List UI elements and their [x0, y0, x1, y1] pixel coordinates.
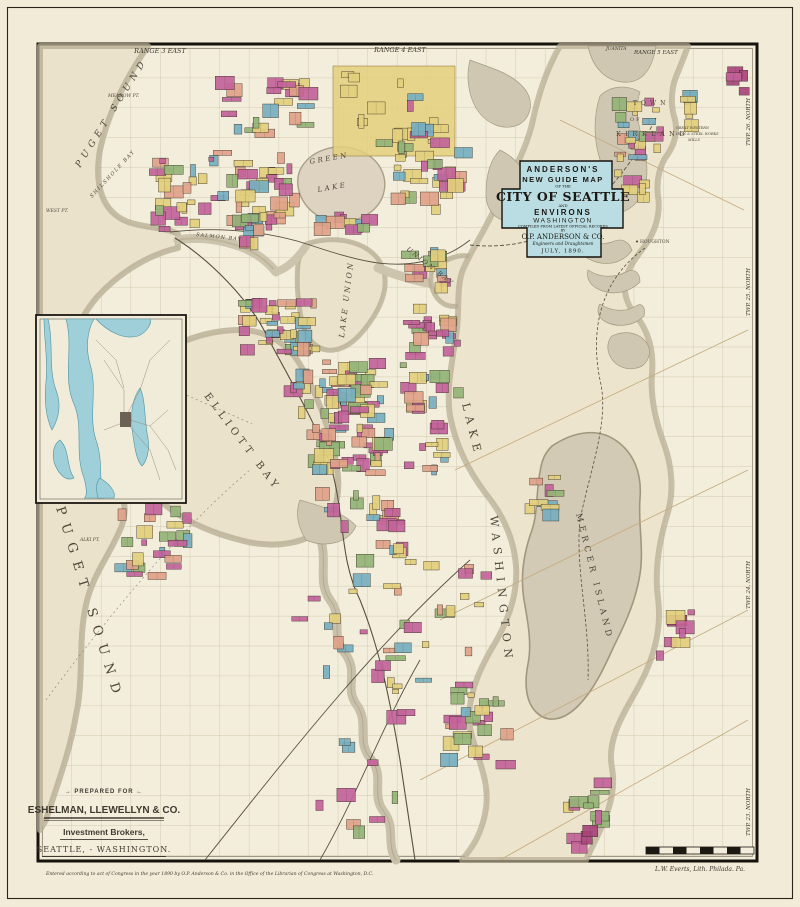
cartouche-washington: WASHINGTON — [533, 218, 592, 225]
label-kirkland-of: OF — [630, 117, 642, 123]
label-twp26: TWP. 26. NORTH — [746, 98, 752, 146]
cartouche-engineers: Engineers and Draughtsmen — [531, 241, 593, 246]
cartouche-july-1890: JULY, 1890. — [540, 249, 584, 255]
cartouche-environs: ENVIRONS — [534, 208, 592, 217]
label-west-pt: WEST PT. — [46, 208, 69, 214]
label-mills-1: GREAT WESTERN — [676, 126, 710, 130]
cartouche-of-the: OF THE — [555, 184, 571, 189]
label-houghton: HOUGHTON — [640, 239, 670, 245]
label-mills-2: IRON & STEEL WORKS — [675, 132, 719, 136]
prepared-eyebrow: → PREPARED FOR ← — [65, 789, 144, 795]
cartouche-andersons: ANDERSON'S — [526, 165, 599, 174]
label-twp24: TWP. 24. NORTH — [746, 561, 752, 609]
map-canvas: PUGET SOUND SHILSHOLE BAY MEADOW PT. WES… — [0, 0, 800, 907]
inset-map — [36, 315, 186, 503]
label-range5: RANGE 5 EAST — [633, 50, 678, 56]
label-meadow-pt: MEADOW PT. — [107, 93, 140, 99]
label-range3: RANGE 3 EAST — [133, 47, 186, 55]
label-twp23: TWP. 23. NORTH — [746, 788, 752, 836]
prepared-firm: ESHELMAN, LLEWELLYN & CO. — [28, 805, 181, 816]
label-twp25: TWP. 25. NORTH — [746, 268, 752, 316]
label-mills-3: MILLS — [687, 138, 701, 142]
label-range4: RANGE 4 EAST — [373, 46, 426, 54]
prepared-brokers: Investment Brokers, — [63, 827, 145, 837]
cartouche-op-anderson: O.P. ANDERSON & CO. — [522, 233, 605, 241]
label-alki-pt: ALKI PT. — [79, 537, 100, 543]
label-kirkland-town: TOWN — [633, 100, 669, 107]
copyright-line: Entered according to act of Congress in … — [45, 871, 374, 877]
label-juanita: JUANITA — [605, 46, 627, 52]
scale-bar — [646, 847, 754, 854]
map-sheet: PUGET SOUND SHILSHOLE BAY MEADOW PT. WES… — [0, 0, 800, 907]
prepared-city: SEATTLE, - WASHINGTON. — [37, 845, 172, 854]
houghton-dot — [636, 241, 638, 243]
lithographer-imprint: L.W. Everts, Lith. Philada. Pa. — [654, 866, 745, 873]
inset-seattle-mark — [120, 412, 131, 427]
cartouche-city-of-seattle: CITY OF SEATTLE — [496, 189, 630, 204]
